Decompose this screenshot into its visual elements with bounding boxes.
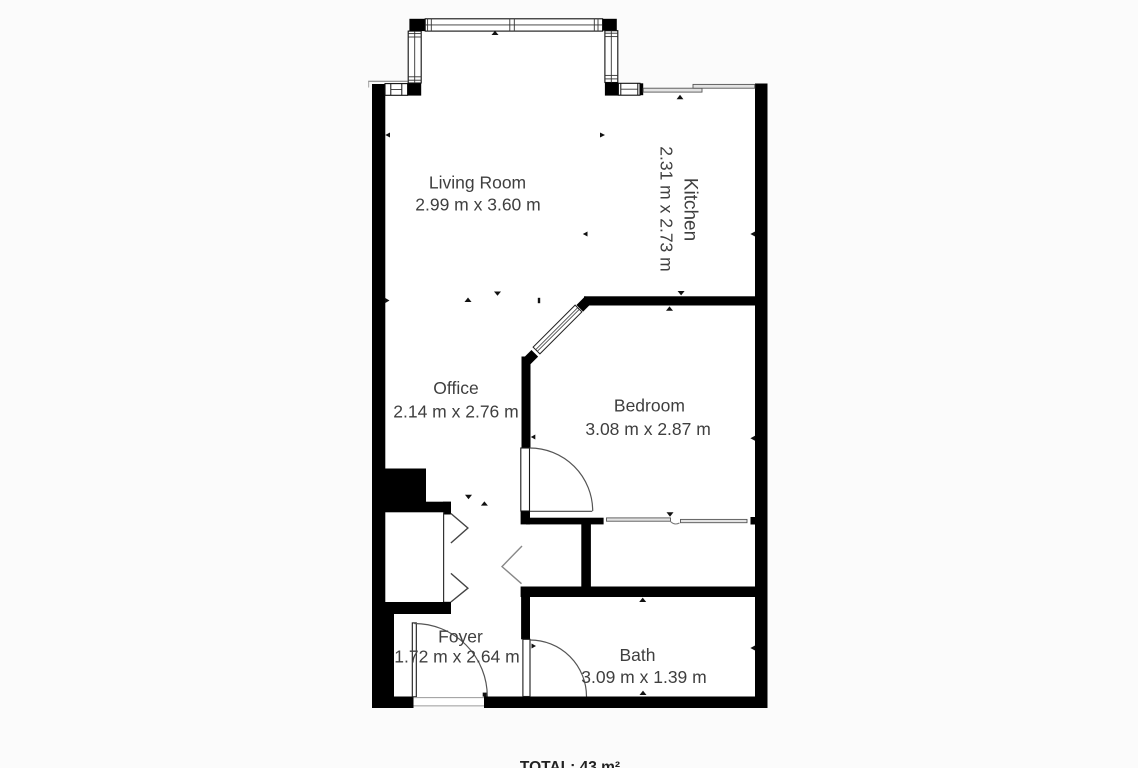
svg-text:Foyer: Foyer xyxy=(438,627,483,647)
svg-text:Living Room: Living Room xyxy=(429,173,526,193)
svg-text:Office: Office xyxy=(433,378,478,398)
svg-text:2.31 m x 2.73 m: 2.31 m x 2.73 m xyxy=(656,146,676,271)
svg-text:TOTAL: 43 m²: TOTAL: 43 m² xyxy=(520,759,620,768)
svg-text:Bedroom: Bedroom xyxy=(614,396,685,416)
svg-text:1.72 m x 2.64 m: 1.72 m x 2.64 m xyxy=(394,647,519,667)
svg-text:2.14 m x 2.76 m: 2.14 m x 2.76 m xyxy=(393,401,518,421)
svg-text:3.09 m x 1.39 m: 3.09 m x 1.39 m xyxy=(581,667,706,687)
svg-text:Bath: Bath xyxy=(620,645,656,665)
svg-text:Kitchen: Kitchen xyxy=(679,178,700,241)
svg-text:2.99 m x 3.60 m: 2.99 m x 3.60 m xyxy=(415,195,540,215)
svg-text:3.08 m x 2.87 m: 3.08 m x 2.87 m xyxy=(585,419,710,439)
